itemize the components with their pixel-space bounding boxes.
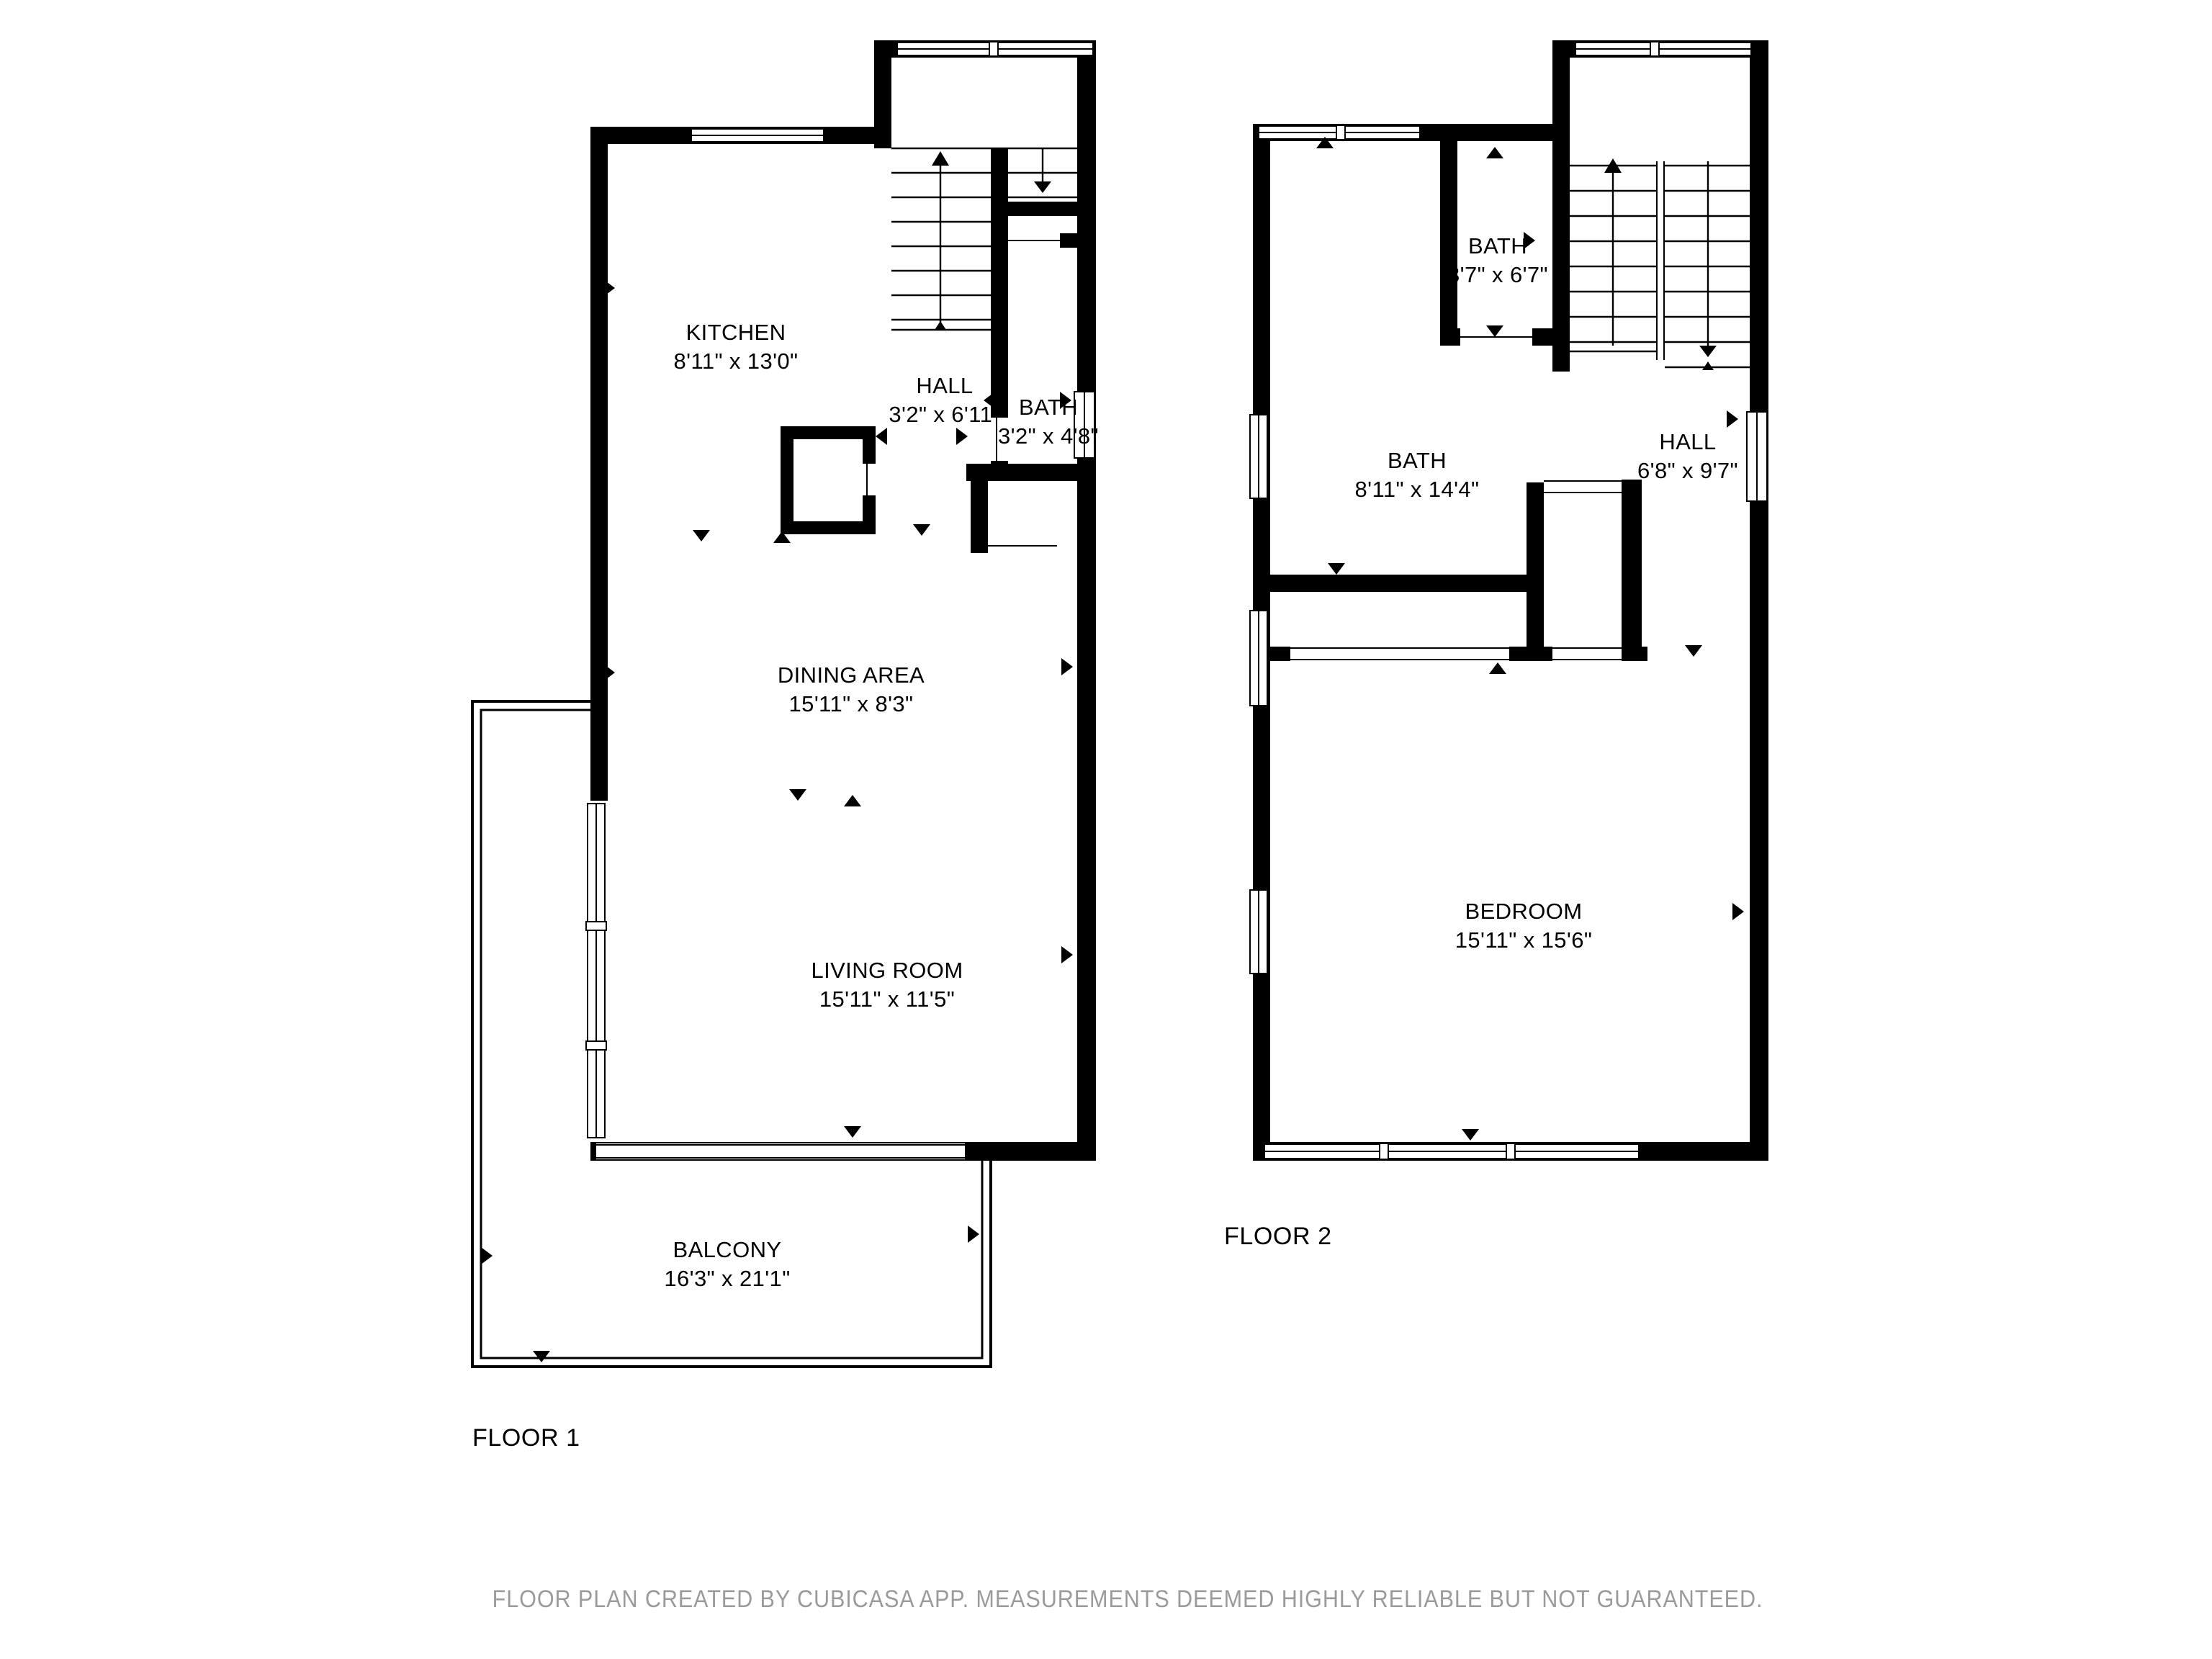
arrow-up-icon: [1702, 361, 1714, 370]
wall: [590, 127, 608, 801]
wall: [781, 426, 876, 439]
room-label-hall-f1: HALL 3'2" x 6'11": [889, 373, 1000, 431]
room-name: BATH: [998, 395, 1099, 423]
floor1-caption: FLOOR 1: [472, 1424, 580, 1453]
wall: [991, 202, 1077, 216]
wall: [991, 233, 1008, 248]
arrow-right-icon: [1727, 410, 1738, 428]
room-label-bath-large-f2: BATH 8'11" x 14'4": [1355, 448, 1480, 505]
floor2-staircase: [1570, 161, 1750, 367]
wall: [1532, 328, 1570, 346]
room-dims: 3'2" x 4'8": [998, 423, 1099, 452]
wall: [863, 426, 876, 464]
room-name: HALL: [1637, 429, 1738, 458]
balcony-door-opening: [596, 1143, 965, 1159]
wall: [1509, 647, 1552, 661]
floor2-walls: [1253, 40, 1768, 1161]
arrow-up-icon: [1486, 147, 1503, 158]
wall: [1527, 482, 1544, 661]
disclaimer-text: FLOOR PLAN CREATED BY CUBICASA APP. MEAS…: [493, 1586, 1763, 1614]
arrow-down-icon: [1462, 1129, 1479, 1141]
arrow-down-icon: [533, 1351, 550, 1362]
arrow-right-icon: [481, 1247, 493, 1264]
room-label-bath-f1: BATH 3'2" x 4'8": [998, 395, 1099, 452]
room-dims: 8'11" x 14'4": [1355, 477, 1480, 505]
window-mullion: [586, 922, 606, 930]
wall: [1077, 40, 1096, 1161]
wall: [1440, 328, 1460, 346]
room-dims: 15'11" x 8'3": [778, 691, 925, 720]
wall: [1622, 480, 1642, 661]
arrow-down-icon: [1486, 325, 1503, 337]
wall: [1552, 40, 1570, 372]
room-label-dining-area: DINING AREA 15'11" x 8'3": [778, 662, 925, 720]
floor2-plan: [1250, 40, 1768, 1161]
room-dims: 6'8" x 9'7": [1637, 458, 1738, 487]
room-dims: 16'3" x 21'1": [664, 1266, 790, 1295]
wall: [971, 481, 988, 553]
room-name: LIVING ROOM: [811, 958, 963, 986]
room-name: DINING AREA: [778, 662, 925, 691]
wall: [1622, 647, 1647, 661]
room-label-kitchen: KITCHEN 8'11" x 13'0": [674, 320, 799, 377]
arrow-right-icon: [968, 1226, 979, 1243]
arrow-down-icon: [1328, 563, 1345, 575]
arrow-up-icon: [1489, 662, 1506, 674]
stairs-down-arrow-icon: [1699, 346, 1717, 357]
room-name: HALL: [889, 373, 1000, 402]
room-dims: 15'11" x 11'5": [811, 986, 963, 1015]
room-dims: 3'7" x 6'7": [1447, 262, 1548, 291]
wall: [781, 521, 876, 534]
floorplan-drawing: [0, 0, 2212, 1659]
wall: [966, 464, 1096, 481]
window-mullion: [1650, 42, 1659, 56]
room-label-bath-small-f2: BATH 3'7" x 6'7": [1447, 233, 1548, 291]
room-label-bedroom: BEDROOM 15'11" x 15'6": [1455, 899, 1593, 956]
arrow-right-icon: [1732, 903, 1744, 920]
window-mullion: [586, 1041, 606, 1050]
wall: [1253, 575, 1544, 592]
arrow-down-icon: [1685, 645, 1702, 657]
wall: [781, 426, 793, 534]
room-dims: 8'11" x 13'0": [674, 349, 799, 377]
wall: [1270, 647, 1290, 661]
room-label-hall-f2: HALL 6'8" x 9'7": [1637, 429, 1738, 487]
room-name: BALCONY: [664, 1237, 790, 1266]
window-mullion: [1336, 125, 1345, 140]
wall: [1060, 233, 1077, 248]
window-mullion: [989, 42, 998, 56]
room-name: KITCHEN: [674, 320, 799, 349]
room-label-balcony: BALCONY 16'3" x 21'1": [664, 1237, 790, 1295]
room-name: BATH: [1355, 448, 1480, 477]
room-dims: 3'2" x 6'11": [889, 402, 1000, 431]
window-mullion: [1506, 1143, 1515, 1159]
room-name: BATH: [1447, 233, 1548, 262]
floorplan-page: KITCHEN 8'11" x 13'0" HALL 3'2" x 6'11" …: [0, 0, 2212, 1659]
room-label-living-room: LIVING ROOM 15'11" x 11'5": [811, 958, 963, 1015]
wall: [1750, 40, 1768, 1161]
room-dims: 15'11" x 15'6": [1455, 927, 1593, 956]
room-name: BEDROOM: [1455, 899, 1593, 927]
floor2-windows: [1250, 42, 1767, 1159]
window-mullion: [1380, 1143, 1388, 1159]
wall: [863, 495, 876, 534]
floor2-caption: FLOOR 2: [1224, 1223, 1332, 1251]
